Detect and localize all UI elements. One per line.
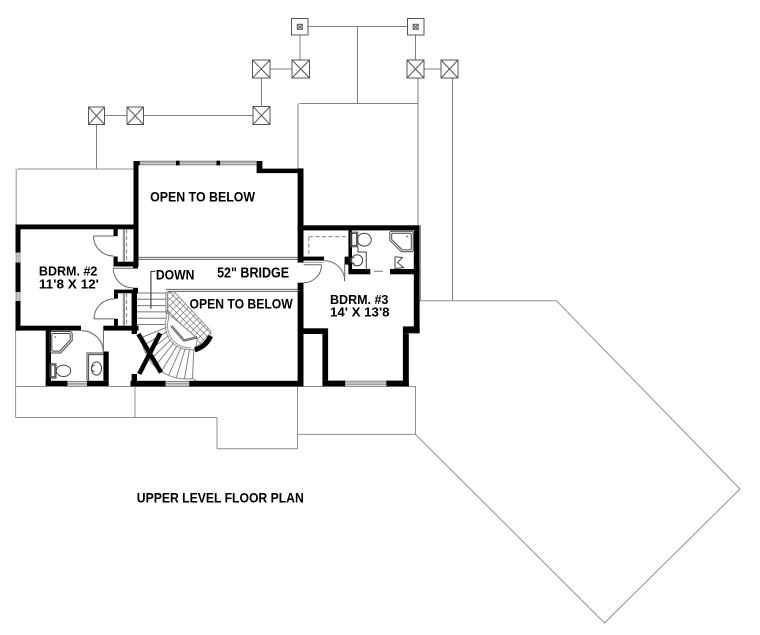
svg-text:DOWN: DOWN [156, 267, 195, 283]
svg-text:BDRM. #3: BDRM. #3 [330, 292, 388, 307]
svg-text:OPEN TO BELOW: OPEN TO BELOW [150, 190, 255, 205]
svg-text:BDRM. #2: BDRM. #2 [39, 264, 98, 279]
svg-text:OPEN TO BELOW: OPEN TO BELOW [190, 297, 294, 313]
svg-text:14' X 13'8: 14' X 13'8 [330, 306, 390, 320]
svg-text:52" BRIDGE: 52" BRIDGE [217, 265, 289, 281]
svg-text:11'8 X 12': 11'8 X 12' [39, 277, 99, 291]
svg-text:UPPER LEVEL FLOOR PLAN: UPPER LEVEL FLOOR PLAN [137, 490, 304, 506]
